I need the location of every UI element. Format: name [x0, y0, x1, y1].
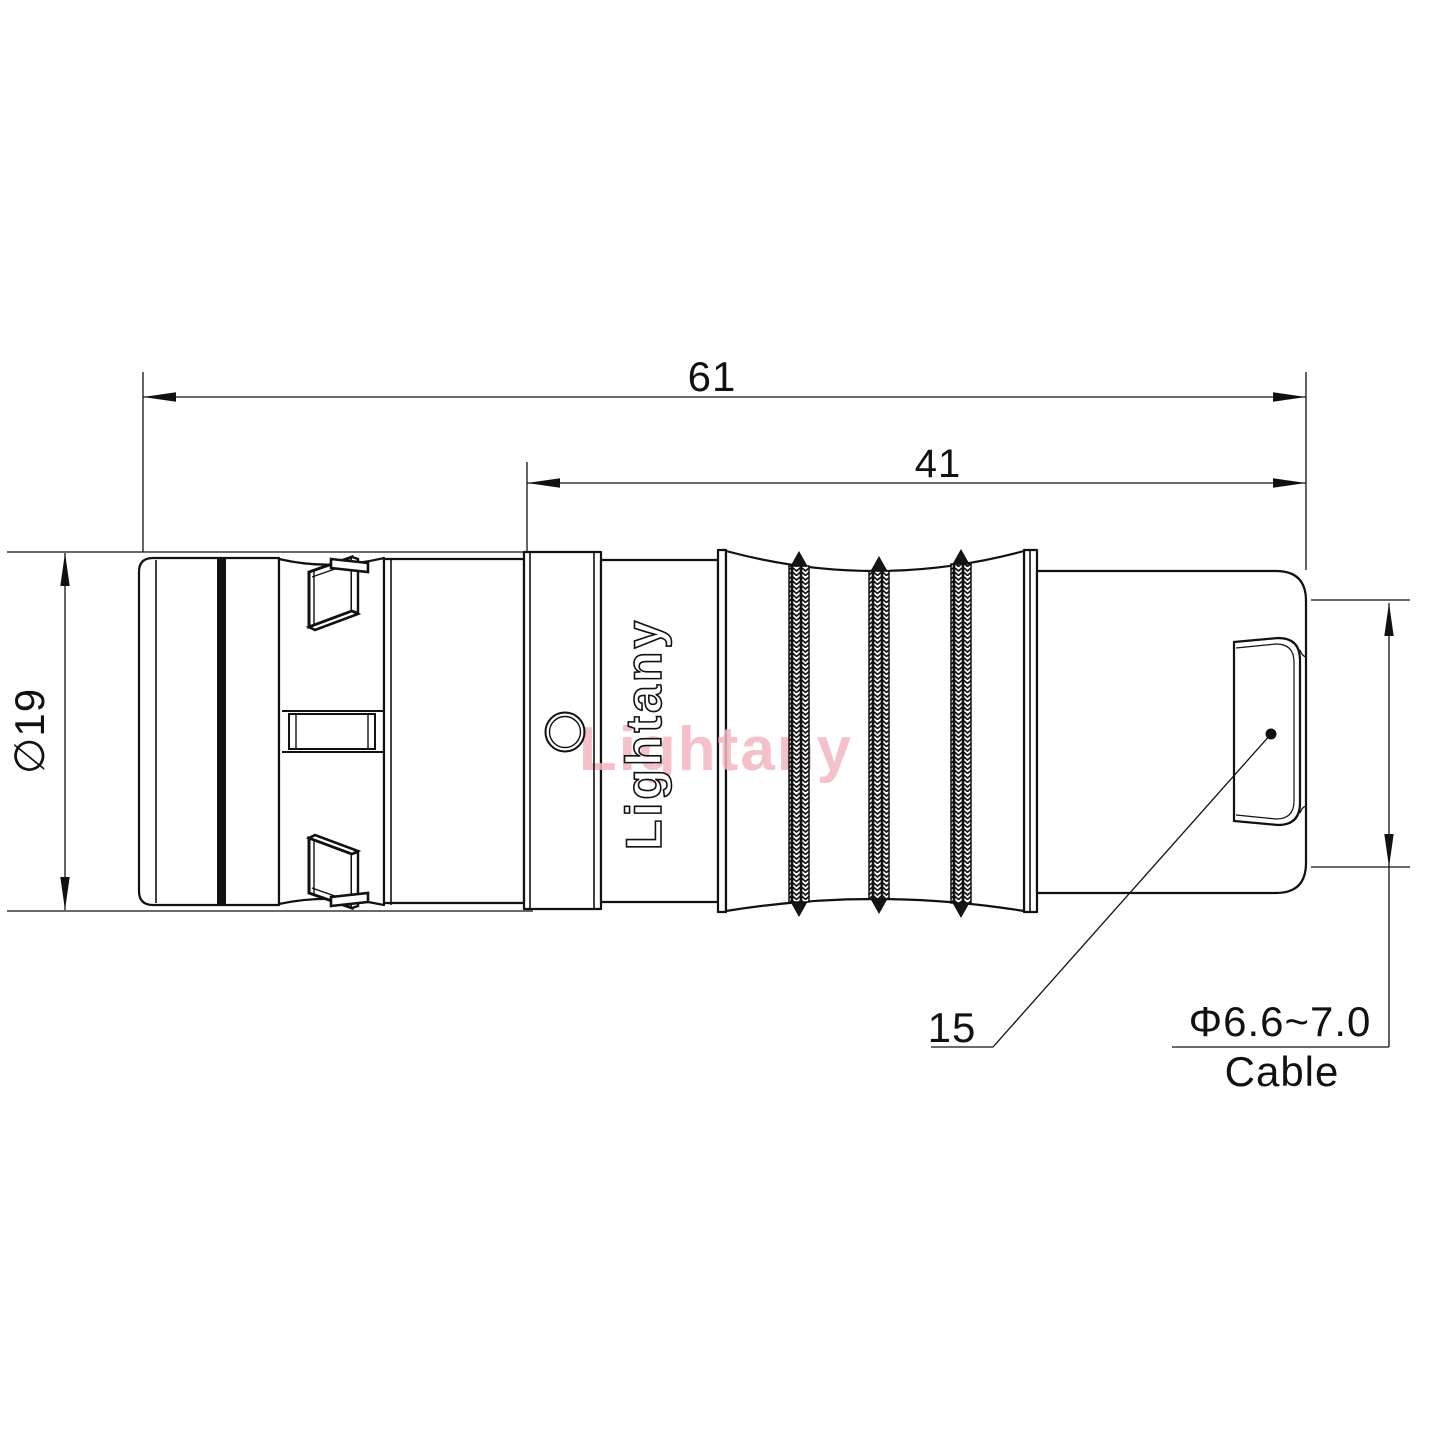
gasket-band — [217, 559, 226, 904]
leader-dot — [1266, 729, 1277, 740]
bayonet-slot — [282, 711, 383, 752]
dim-label-dia19: ∅19 — [6, 688, 53, 774]
dimension-61 — [143, 372, 1306, 570]
technical-drawing-page: Lightany — [0, 0, 1440, 1440]
connector-technical-drawing: Lightany — [0, 0, 1440, 1440]
knurl-band — [951, 550, 971, 917]
dim-label-15: 15 — [928, 1004, 977, 1051]
dim-label-cable: Cable — [1225, 1048, 1340, 1095]
vertical-logo-text: Lightany — [616, 618, 672, 850]
mid-section — [384, 559, 524, 903]
dim-label-41: 41 — [915, 442, 962, 486]
dim-label-cable-range: Φ6.6~7.0 — [1189, 998, 1372, 1045]
dim-label-61: 61 — [688, 353, 737, 400]
front-shell — [139, 558, 279, 905]
knurl-band — [789, 552, 809, 916]
knurl-band — [869, 557, 889, 913]
